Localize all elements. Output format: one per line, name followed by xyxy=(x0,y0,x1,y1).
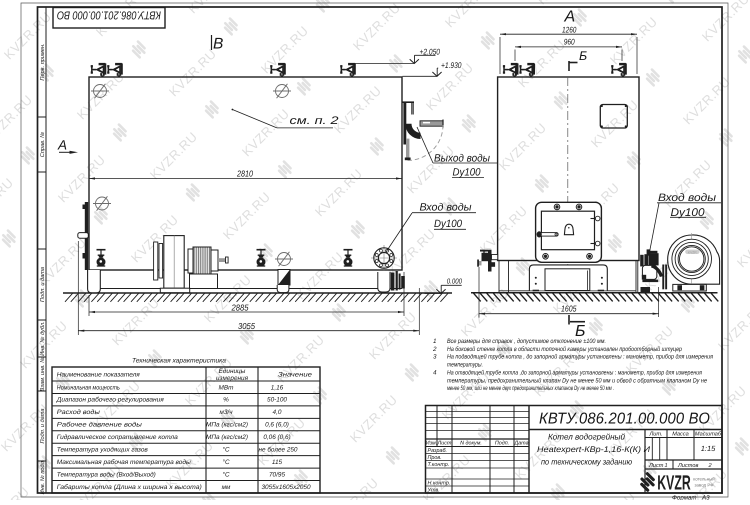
svg-text:3055: 3055 xyxy=(238,321,255,331)
svg-text:Температура уходящих газов: Температура уходящих газов xyxy=(57,447,149,454)
svg-text:Лист: Лист xyxy=(437,440,452,446)
svg-text:температуры.: температуры. xyxy=(447,362,483,369)
svg-text:см. п. 2: см. п. 2 xyxy=(290,115,339,127)
svg-text:Вход воды: Вход воды xyxy=(420,202,472,214)
svg-text:Дата: Дата xyxy=(513,440,528,446)
svg-text:Лист: Лист xyxy=(648,463,664,469)
svg-text:Масса: Масса xyxy=(672,432,689,438)
svg-text:Разраб.: Разраб. xyxy=(428,448,448,454)
svg-text:котельный: котельный xyxy=(693,477,715,482)
svg-text:менее 50 мм, или не менее дву: менее 50 мм, или не менее двух предохран… xyxy=(447,385,614,392)
svg-text:Dy100: Dy100 xyxy=(671,207,706,219)
svg-text:завод РФ: завод РФ xyxy=(694,483,714,488)
svg-text:1260: 1260 xyxy=(562,26,577,35)
svg-text:Пров.: Пров. xyxy=(428,455,442,461)
svg-text:Инв. № дубл.: Инв. № дубл. xyxy=(39,321,46,355)
svg-text:мм: мм xyxy=(222,484,231,491)
svg-text:Техническая характеристика: Техническая характеристика xyxy=(132,358,226,365)
svg-text:+1.930: +1.930 xyxy=(441,61,462,70)
svg-text:На подводящей трубе котла ,: На подводящей трубе котла , до запорной … xyxy=(447,354,714,361)
svg-text:Подп. и дата: Подп. и дата xyxy=(39,408,46,443)
svg-text:KVZR: KVZR xyxy=(688,250,697,254)
svg-text:Выход воды: Выход воды xyxy=(434,152,490,164)
svg-text:Н.контр.: Н.контр. xyxy=(428,480,451,486)
svg-text:Подп.: Подп. xyxy=(495,440,509,446)
svg-text:°С: °С xyxy=(222,447,230,454)
svg-text:4,0: 4,0 xyxy=(273,409,282,416)
svg-text:МПа (кгс/см2): МПа (кгс/см2) xyxy=(206,434,248,441)
svg-text:Расход воды: Расход воды xyxy=(57,409,100,416)
svg-text:КВТУ.086.201.00.000 ВО: КВТУ.086.201.00.000 ВО xyxy=(57,8,161,20)
svg-text:Т.контр.: Т.контр. xyxy=(428,462,450,468)
svg-text:МВт: МВт xyxy=(219,384,235,391)
svg-text:0,6 (6,0): 0,6 (6,0) xyxy=(265,422,289,429)
svg-text:3055х1605х2050: 3055х1605х2050 xyxy=(261,484,310,491)
svg-text:Масштаб: Масштаб xyxy=(695,431,722,438)
svg-text:Номинальная мощность: Номинальная мощность xyxy=(57,384,120,391)
svg-text:N докум.: N докум. xyxy=(460,440,482,446)
svg-text:Наименование показателя: Наименование показателя xyxy=(57,372,141,379)
svg-text:Heatexpert-КВр-1,16-К(К) И: Heatexpert-КВр-1,16-К(К) И xyxy=(537,445,650,454)
svg-text:Температура воды (Вход/Выход): Температура воды (Вход/Выход) xyxy=(57,471,156,478)
svg-text:МПа (кгс/см2): МПа (кгс/см2) xyxy=(206,422,248,429)
svg-text:На боковой стенке котла в обла: На боковой стенке котла в области топочн… xyxy=(447,346,682,353)
svg-text:°С: °С xyxy=(222,459,230,466)
svg-text:м3/ч: м3/ч xyxy=(219,409,233,416)
svg-text:температуры, предохранительный: температуры, предохранительный клапан Dу… xyxy=(447,377,707,384)
svg-text:Значение: Значение xyxy=(278,372,313,379)
svg-text:Габариты котла (Длина х ширина: Габариты котла (Длина х ширина х высота) xyxy=(57,484,202,491)
svg-text:°С: °С xyxy=(222,471,230,478)
svg-text:Перв. примен.: Перв. примен. xyxy=(40,43,46,80)
svg-text:KVZR: KVZR xyxy=(657,471,691,494)
svg-text:А3: А3 xyxy=(701,495,710,501)
svg-text:Вход воды: Вход воды xyxy=(658,192,716,204)
svg-text:КВТУ.086.201.00.000 ВО: КВТУ.086.201.00.000 ВО xyxy=(539,411,710,428)
svg-text:Гидравлическое сопративление к: Гидравлическое сопративление котла xyxy=(57,434,178,441)
svg-text:1,16: 1,16 xyxy=(271,384,284,391)
svg-text:0.000: 0.000 xyxy=(447,276,462,285)
svg-text:70/95: 70/95 xyxy=(269,471,285,478)
svg-text:Dy100: Dy100 xyxy=(434,218,462,230)
svg-text:Изм.: Изм. xyxy=(426,440,438,446)
svg-text:2810: 2810 xyxy=(236,169,253,179)
svg-text:Формат: Формат xyxy=(672,495,697,501)
svg-text:Котел водогрейный: Котел водогрейный xyxy=(548,433,625,442)
svg-text:1: 1 xyxy=(664,463,667,469)
svg-text:Лит.: Лит. xyxy=(648,432,662,438)
svg-text:Справ. №: Справ. № xyxy=(40,132,46,157)
svg-text:Листов: Листов xyxy=(677,463,698,469)
svg-text:В: В xyxy=(213,36,223,53)
svg-text:А: А xyxy=(564,9,576,26)
svg-text:На отводящей трубе котла ,до з: На отводящей трубе котла ,до запорной ар… xyxy=(447,369,703,376)
svg-text:Подп. и дата: Подп. и дата xyxy=(39,267,46,302)
svg-text:Максимальная рабочая температу: Максимальная рабочая температура воды xyxy=(57,459,191,466)
svg-text:Б: Б xyxy=(579,49,587,63)
svg-text:не более 250: не более 250 xyxy=(258,447,297,454)
svg-text:2885: 2885 xyxy=(231,302,249,312)
svg-text:1: 1 xyxy=(433,338,437,345)
svg-text:Dy100: Dy100 xyxy=(453,167,481,179)
svg-text:4: 4 xyxy=(433,369,437,376)
svg-text:0,06 (0,6): 0,06 (0,6) xyxy=(263,434,290,441)
svg-text:А: А xyxy=(57,138,67,153)
svg-text:1:15: 1:15 xyxy=(701,444,716,453)
svg-text:Рабочее давление воды: Рабочее давление воды xyxy=(57,422,142,429)
svg-text:измерения: измерения xyxy=(216,375,249,382)
svg-text:+2.050: +2.050 xyxy=(420,47,441,56)
svg-text:Инв. № подл.: Инв. № подл. xyxy=(39,460,46,495)
svg-text:1605: 1605 xyxy=(561,304,577,314)
svg-text:по техническому заданию: по техническому заданию xyxy=(541,458,632,467)
svg-text:Все размеры для справок , допу: Все размеры для справок , допустимое отк… xyxy=(447,338,606,345)
svg-text:3: 3 xyxy=(433,354,437,361)
svg-text:960: 960 xyxy=(564,38,575,47)
svg-text:115: 115 xyxy=(272,459,283,466)
svg-text:Диапазон рабочего регулировани: Диапазон рабочего регулирования xyxy=(56,397,165,404)
svg-text:%: % xyxy=(223,397,229,404)
svg-text:2: 2 xyxy=(432,346,437,353)
svg-text:Утв.: Утв. xyxy=(427,487,440,493)
svg-text:50-100: 50-100 xyxy=(267,397,287,404)
svg-text:Взам. инв. №: Взам. инв. № xyxy=(40,357,46,392)
